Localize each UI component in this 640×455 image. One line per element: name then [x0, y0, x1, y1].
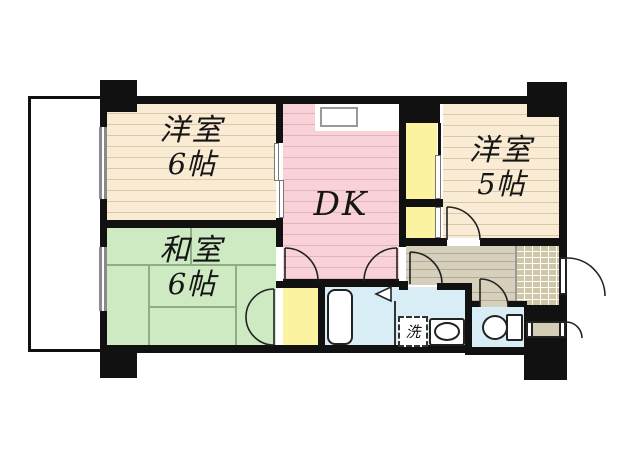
closet-western5-upper: [406, 123, 437, 199]
room-size: 5帖: [443, 168, 559, 200]
wall-center-seg1: [276, 103, 283, 143]
window-japanese6: [99, 247, 107, 311]
washing-machine-space: 洗: [398, 316, 428, 347]
wall-left-seg3: [100, 311, 107, 352]
wall-west5-bottom-right: [480, 238, 567, 246]
closet-japanese6: [283, 287, 318, 345]
wall-hall-top-left: [399, 238, 447, 246]
wall-mass-bottom-right: [524, 305, 567, 380]
genkan-step-line: [515, 246, 517, 305]
room-label-japanese6: 和室 6帖: [107, 234, 276, 300]
door-meter-box: [566, 322, 582, 338]
wall-toilet-top-left: [472, 301, 480, 307]
wall-top: [100, 96, 567, 104]
balcony: [28, 96, 107, 352]
duct-block-top: [399, 98, 440, 123]
closet-divider: [399, 199, 443, 207]
room-label-dk: DK: [283, 186, 399, 223]
wall-dk-right-seg1: [399, 123, 406, 247]
genkan-tile-floor: [517, 246, 559, 305]
wall-bottom-toilet: [465, 347, 527, 355]
meter-box-cap-right: [559, 321, 566, 338]
sliding-door-closet-upper: [435, 155, 441, 199]
washing-machine-label: 洗: [405, 321, 420, 342]
front-door-leaf: [559, 257, 567, 295]
room-name: 洋室: [443, 134, 559, 168]
room-label-western6: 洋室 6帖: [107, 114, 276, 180]
wall-toilet-top-right: [508, 301, 527, 307]
wall-closet-west5-top: [438, 123, 441, 155]
wall-dk-right-seg2: [399, 281, 408, 290]
hallway-floor: [406, 246, 517, 285]
wall-left-seg2: [100, 199, 107, 247]
room-name: DK: [283, 186, 399, 223]
pillar-bottom-left: [100, 350, 137, 378]
kitchen-sink: [320, 107, 358, 127]
door-entrance: [567, 258, 605, 296]
meter-box-cap-left: [526, 321, 533, 338]
sliding-door-closet-lower: [435, 207, 441, 238]
bathtub: [327, 289, 353, 345]
wall-right-upper: [559, 96, 567, 257]
tatami-joint: [148, 306, 237, 308]
room-label-western5: 洋室 5帖: [443, 134, 559, 200]
vanity-sink-bowl: [434, 322, 460, 341]
window-western6: [99, 127, 107, 199]
wall-left-seg1: [100, 96, 107, 127]
toilet-tank: [506, 314, 523, 341]
wall-washroom-toilet: [465, 283, 472, 353]
closet-western5-lower: [406, 207, 437, 238]
room-name: 和室: [107, 234, 276, 268]
floor-plan: 洗 洋室 6帖 DK 洋室 5帖 和室 6帖: [0, 0, 640, 455]
pillar-top-right: [527, 82, 567, 117]
toilet-bowl: [482, 315, 508, 340]
wall-west6-japanese6: [107, 220, 283, 228]
room-size: 6帖: [107, 268, 276, 300]
room-name: 洋室: [107, 114, 276, 148]
wall-closet-bath: [318, 283, 325, 353]
room-size: 6帖: [107, 148, 276, 180]
wall-dk-bottom: [283, 279, 399, 287]
bath-washroom-partition: [394, 301, 396, 347]
